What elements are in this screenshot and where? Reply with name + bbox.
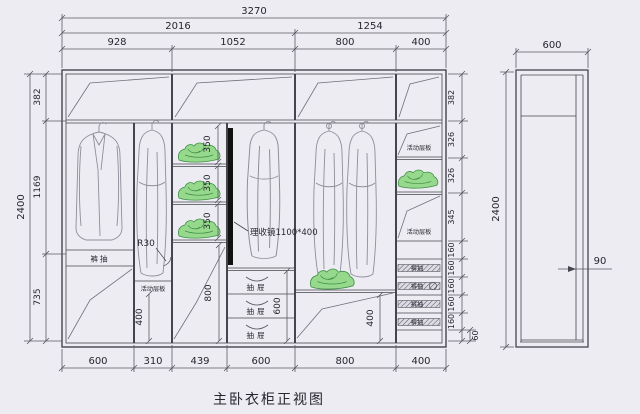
hanging-coat <box>76 122 122 240</box>
hanging-dress <box>314 121 344 277</box>
dim-bottom-4: 600 <box>251 356 270 367</box>
movable-shelf-label: 活动层板 <box>407 228 432 236</box>
dim-top3-4: 400 <box>411 37 430 48</box>
diagonal-door-line <box>298 77 393 117</box>
drawing-title: 主卧衣柜正视图 <box>213 392 325 408</box>
diagonal-door-line <box>297 293 393 338</box>
trouser-rack-label: 裤抽 <box>411 319 423 327</box>
folded-clothes-bag <box>398 170 438 188</box>
drawing-canvas: 理收镜1100*400 抽屉 抽屉 抽屉 裤抽 裤抽 裤抽 裤抽 裤抽 R30 … <box>0 0 640 414</box>
side-cabinet <box>500 48 612 350</box>
drawer-stack: 抽屉 抽屉 抽屉 <box>227 277 295 340</box>
dim-bottom-1: 600 <box>88 356 107 367</box>
main-wardrobe <box>62 70 446 347</box>
dim-right-seg4: 345 <box>447 209 456 224</box>
drawer-label: 抽屉 <box>247 282 268 292</box>
mirror-leader-line <box>234 222 248 231</box>
folded-clothes-bag <box>178 181 220 200</box>
dim-top3-1: 928 <box>107 37 126 48</box>
side-inner-lines <box>520 75 584 342</box>
corner-radius-label: R30 <box>137 239 155 249</box>
inner-frame <box>66 74 442 343</box>
diagonal-door-line <box>175 77 292 117</box>
diagonal-door-line <box>68 77 169 117</box>
dim-bottom-3: 439 <box>190 356 209 367</box>
drawer-label: 抽屉 <box>247 306 268 316</box>
dim-drawer-stack: 600 <box>273 297 283 314</box>
trouser-rack-stack: 裤抽 裤抽 裤抽 裤抽 <box>398 265 440 327</box>
drawer-label: 抽屉 <box>247 330 268 340</box>
side-outer-frame <box>516 70 588 347</box>
col5-shelf <box>295 290 396 293</box>
dim-top3-3: 800 <box>335 37 354 48</box>
col4-shelf <box>227 268 295 271</box>
open-compartment-diagonals <box>68 77 440 339</box>
dim-col3-lower: 800 <box>204 284 214 301</box>
dim-right-seg9: 160 <box>447 314 456 329</box>
diagonal-door-line <box>174 247 225 339</box>
trouser-rack-label: 裤抽 <box>411 283 423 291</box>
side-width-dim-lines <box>513 48 591 68</box>
hanging-dress <box>137 120 167 276</box>
folded-clothes-bag <box>178 143 220 162</box>
movable-shelf-label: 活动层板 <box>141 285 166 293</box>
dim-top2-left: 2016 <box>165 21 190 32</box>
trouser-rack-label: 裤抽 <box>411 301 423 309</box>
side-dimensions <box>500 48 612 350</box>
dim-col5-lower: 400 <box>366 309 376 326</box>
dressing-mirror: 理收镜1100*400 <box>228 128 318 265</box>
diagonal-door-line <box>399 77 439 117</box>
dim-top2-right: 1254 <box>357 21 382 32</box>
dim-col2-lower: 400 <box>135 308 145 325</box>
dim-right-seg5: 160 <box>447 242 456 257</box>
dim-right-seg8: 160 <box>447 296 456 311</box>
dim-side-height: 2400 <box>491 196 502 221</box>
dim-right-seg10: 60 <box>471 330 480 340</box>
dim-left-seg1: 382 <box>33 88 43 105</box>
hanging-dress <box>347 121 377 277</box>
mirror-bar <box>228 128 233 265</box>
dim-left-seg2: 1169 <box>33 175 43 198</box>
dim-side-width: 600 <box>542 40 561 51</box>
wardrobe-elevation-drawing: 理收镜1100*400 抽屉 抽屉 抽屉 裤抽 裤抽 裤抽 裤抽 裤抽 R30 … <box>0 0 640 414</box>
top-band-dividers <box>172 74 396 120</box>
dim-shelf-gap-2: 350 <box>203 174 213 191</box>
folded-clothes-bag <box>178 219 220 238</box>
top-shelf-line <box>66 120 442 123</box>
dim-left-height: 2400 <box>16 194 27 219</box>
outer-frame <box>62 70 446 347</box>
dim-shelf-gap-1: 350 <box>203 135 213 152</box>
dim-bottom-2: 310 <box>143 356 162 367</box>
dim-right-seg6: 160 <box>447 260 456 275</box>
dim-shelf-gap-3: 350 <box>203 212 213 229</box>
folded-clothes-bag <box>310 269 354 289</box>
dim-side-inset: 90 <box>594 256 607 267</box>
side-height-dim-lines <box>500 69 514 350</box>
dim-bottom-5: 800 <box>335 356 354 367</box>
dim-right-seg3: 326 <box>447 168 456 183</box>
movable-shelf-label: 活动层板 <box>407 144 432 152</box>
side-inset-arrowhead <box>568 266 576 272</box>
dim-right-seg2: 326 <box>447 132 456 147</box>
dim-bottom-6: 400 <box>411 356 430 367</box>
pants-drawer-label: 裤抽 <box>91 254 110 264</box>
dim-top3-2: 1052 <box>220 37 245 48</box>
dim-right-seg7: 160 <box>447 278 456 293</box>
trouser-rack-label: 裤抽 <box>411 265 423 273</box>
mirror-label: 理收镜1100*400 <box>250 227 318 238</box>
dim-total-width: 3270 <box>241 6 266 17</box>
dim-right-seg1: 382 <box>447 90 456 105</box>
dim-left-seg3: 735 <box>33 288 43 305</box>
diagonal-door-line <box>68 269 132 339</box>
left-dimension-lines <box>24 71 66 344</box>
